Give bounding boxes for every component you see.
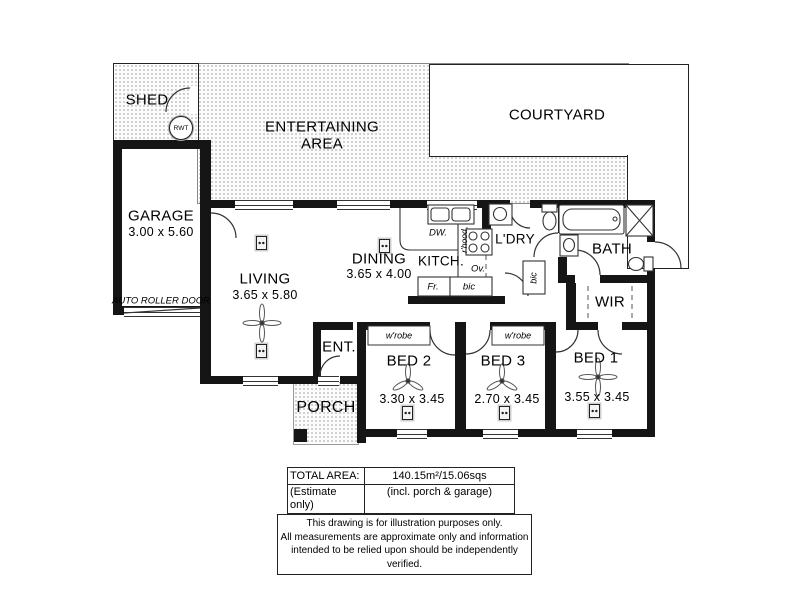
- disclaimer-line3: intended to be relied upon should be ind…: [278, 544, 531, 571]
- bed1-dims: 3.55 x 3.45: [564, 391, 629, 404]
- wall-segment: [558, 202, 567, 233]
- entry-label: ENT.: [322, 340, 356, 355]
- door-threshold: [318, 376, 339, 386]
- wall-segment: [390, 200, 427, 208]
- power-point-symbol: [499, 406, 510, 420]
- total-area-label: TOTAL AREA:: [288, 468, 365, 485]
- bed3-dims: 2.70 x 3.45: [474, 393, 539, 406]
- door-arc: [510, 208, 530, 228]
- cooktop-burner: [469, 244, 477, 252]
- disclaimer-box: This drawing is for illustration purpose…: [277, 514, 532, 575]
- power-point-symbol: [256, 344, 267, 358]
- wall-segment: [545, 322, 556, 437]
- door-arc: [430, 330, 455, 355]
- kitchen-bic-label: bic: [463, 282, 475, 292]
- wall-segment: [113, 140, 122, 315]
- courtyard-label: COURTYARD: [509, 108, 605, 123]
- bed2-wardrobe-label: w'robe: [386, 332, 412, 341]
- window: [243, 376, 278, 386]
- window: [235, 200, 293, 210]
- garage-label: GARAGE: [128, 209, 194, 224]
- living-label: LIVING: [240, 272, 291, 287]
- door-arc: [534, 233, 558, 257]
- dining-dims: 3.65 x 4.00: [346, 268, 411, 281]
- total-area-value: 140.15m²/15.06sqs: [365, 468, 514, 485]
- wir-label: WIR: [595, 295, 625, 310]
- living-dims: 3.65 x 5.80: [232, 289, 297, 302]
- wc-toilet: [543, 212, 556, 230]
- dining-label: DINING: [352, 252, 406, 267]
- oven-label: Ov.: [471, 264, 485, 274]
- bathtub-drain: [613, 217, 617, 221]
- wall-segment: [203, 376, 243, 384]
- window: [397, 429, 427, 439]
- kitchen-fixtures: [400, 205, 492, 296]
- disclaimer-line2: All measurements are approximate only an…: [278, 531, 531, 545]
- wall-segment: [408, 296, 505, 304]
- total-area-note: (incl. porch & garage): [365, 485, 514, 513]
- entertaining-label-line1: ENTERTAINING: [265, 120, 379, 135]
- wall-segment: [647, 200, 655, 242]
- wall-segment: [576, 322, 598, 330]
- entertaining-label-line2: AREA: [301, 137, 343, 152]
- wall-segment: [200, 140, 211, 384]
- window: [427, 200, 477, 210]
- ceiling-fan-living: [243, 304, 281, 342]
- total-area-table: TOTAL AREA: 140.15m²/15.06sqs (Estimate …: [287, 467, 515, 514]
- wall-segment: [600, 275, 655, 283]
- wall-segment: [558, 275, 575, 283]
- door-arc: [211, 213, 236, 238]
- wall-segment: [293, 200, 337, 208]
- bed3-label: BED 3: [481, 354, 526, 369]
- garage-dims: 3.00 x 5.60: [128, 226, 193, 239]
- shed-label: SHED: [126, 93, 169, 108]
- wall-segment: [612, 429, 655, 437]
- laundry-label: L'DRY: [495, 232, 535, 246]
- bed1-label: BED 1: [574, 351, 619, 366]
- bathtub-inner: [563, 209, 620, 230]
- dishwasher-label: DW.: [429, 228, 447, 238]
- wall-segment: [566, 283, 576, 330]
- floorplan-canvas: RWT SHED ENTERTAINING AREA COURTYARD GAR…: [0, 0, 800, 600]
- power-point-symbol: [402, 406, 413, 420]
- fridge-label: Fr.: [427, 282, 438, 292]
- wall-segment: [482, 202, 491, 242]
- door-arc: [466, 330, 490, 354]
- window: [483, 429, 518, 439]
- roller-door-opening: [124, 307, 200, 317]
- porch-label: PORCH: [296, 400, 355, 416]
- shed-door-gap: [189, 86, 198, 114]
- kitchen-label: KITCH.: [418, 254, 464, 268]
- wall-segment: [647, 268, 655, 437]
- bath-label: BATH: [592, 242, 632, 257]
- rwt-label: RWT: [174, 125, 189, 132]
- wall-segment: [530, 200, 655, 208]
- wall-segment: [357, 322, 366, 443]
- disclaimer-line1: This drawing is for illustration purpose…: [278, 517, 531, 531]
- bed2-label: BED 2: [387, 354, 432, 369]
- wall-segment: [455, 322, 466, 437]
- cooktop-burner: [481, 244, 489, 252]
- laundry-fixtures: [489, 204, 557, 294]
- bathtub: [559, 205, 624, 234]
- bed3-wardrobe-label: w'robe: [505, 332, 531, 341]
- trough-bowl: [494, 208, 507, 221]
- window: [577, 429, 612, 439]
- sliding-door: [337, 200, 390, 210]
- wall-segment: [365, 322, 430, 330]
- estimate-label: (Estimate only): [288, 485, 365, 513]
- wall-segment: [113, 140, 207, 149]
- cooktop-burner: [469, 232, 477, 240]
- door-arc: [320, 356, 340, 376]
- wall-segment: [622, 322, 647, 330]
- rangehood-label: r'hood: [460, 229, 469, 252]
- power-point-symbol: [256, 236, 267, 250]
- wall-segment: [313, 322, 321, 380]
- laundry-bic-label: bic: [530, 272, 539, 284]
- power-point-symbol: [589, 404, 600, 418]
- wall-segment: [490, 322, 545, 330]
- door-arc: [505, 273, 528, 296]
- auto-roller-door-label: AUTO ROLLER DOOR: [112, 296, 210, 306]
- wall-segment: [317, 322, 353, 330]
- bed2-dims: 3.30 x 3.45: [379, 393, 444, 406]
- vanity: [560, 235, 578, 256]
- rainwater-tank: RWT: [169, 116, 193, 140]
- porch-post: [294, 429, 307, 442]
- wall-segment: [203, 200, 235, 208]
- vanity-basin: [564, 239, 575, 252]
- courtyard-side-strip: [627, 155, 689, 269]
